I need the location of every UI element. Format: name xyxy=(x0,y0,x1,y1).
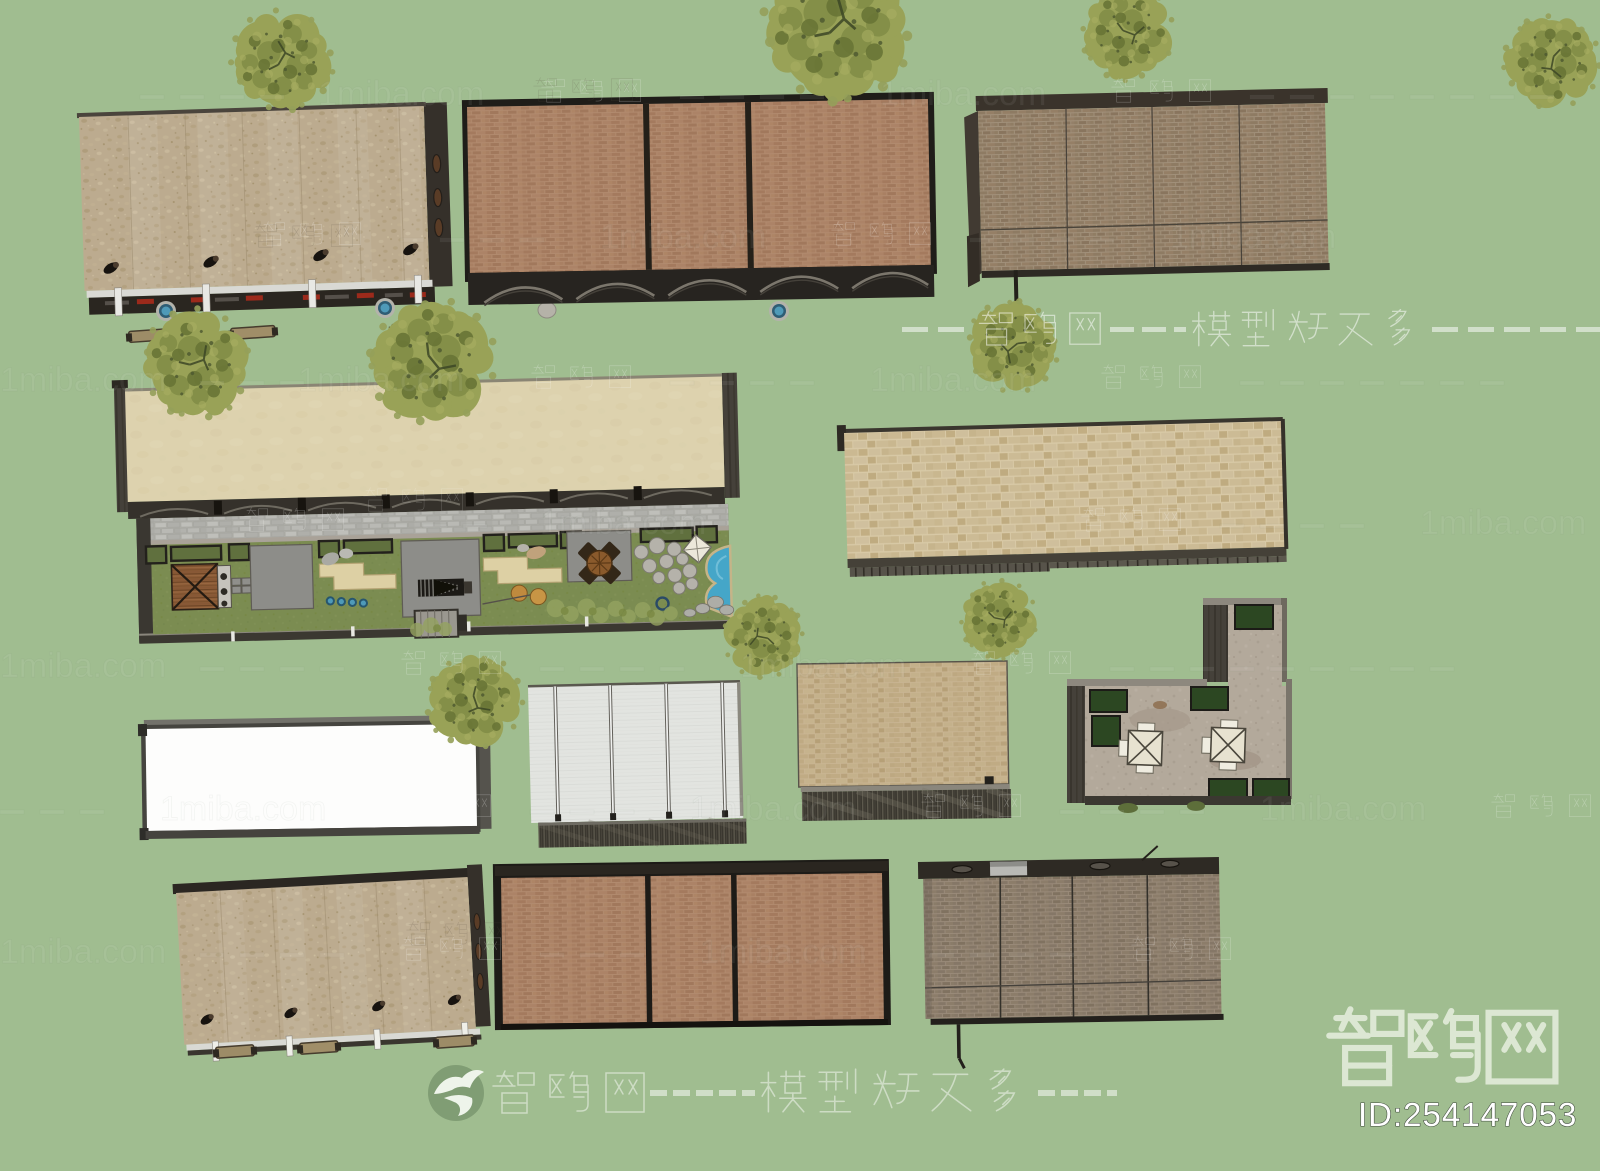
svg-text:ID:254147053: ID:254147053 xyxy=(1358,1096,1577,1133)
svg-text:1miba.com: 1miba.com xyxy=(298,361,464,399)
svg-text:1miba.com: 1miba.com xyxy=(540,504,706,542)
svg-text:1miba.com: 1miba.com xyxy=(0,361,166,399)
svg-text:1miba.com: 1miba.com xyxy=(870,361,1036,399)
svg-text:1miba.com: 1miba.com xyxy=(690,790,856,828)
svg-text:1miba.com: 1miba.com xyxy=(740,647,906,685)
svg-text:1miba.com: 1miba.com xyxy=(0,647,166,685)
svg-text:1miba.com: 1miba.com xyxy=(1420,504,1586,542)
svg-text:1miba.com: 1miba.com xyxy=(318,75,484,113)
svg-text:1miba.com: 1miba.com xyxy=(700,933,866,971)
svg-text:1miba.com: 1miba.com xyxy=(1260,790,1426,828)
svg-text:1miba.com: 1miba.com xyxy=(1170,218,1336,256)
svg-text:1miba.com: 1miba.com xyxy=(0,933,166,971)
svg-text:1miba.com: 1miba.com xyxy=(600,218,766,256)
svg-text:1miba.com: 1miba.com xyxy=(880,75,1046,113)
svg-text:1miba.com: 1miba.com xyxy=(160,790,326,828)
